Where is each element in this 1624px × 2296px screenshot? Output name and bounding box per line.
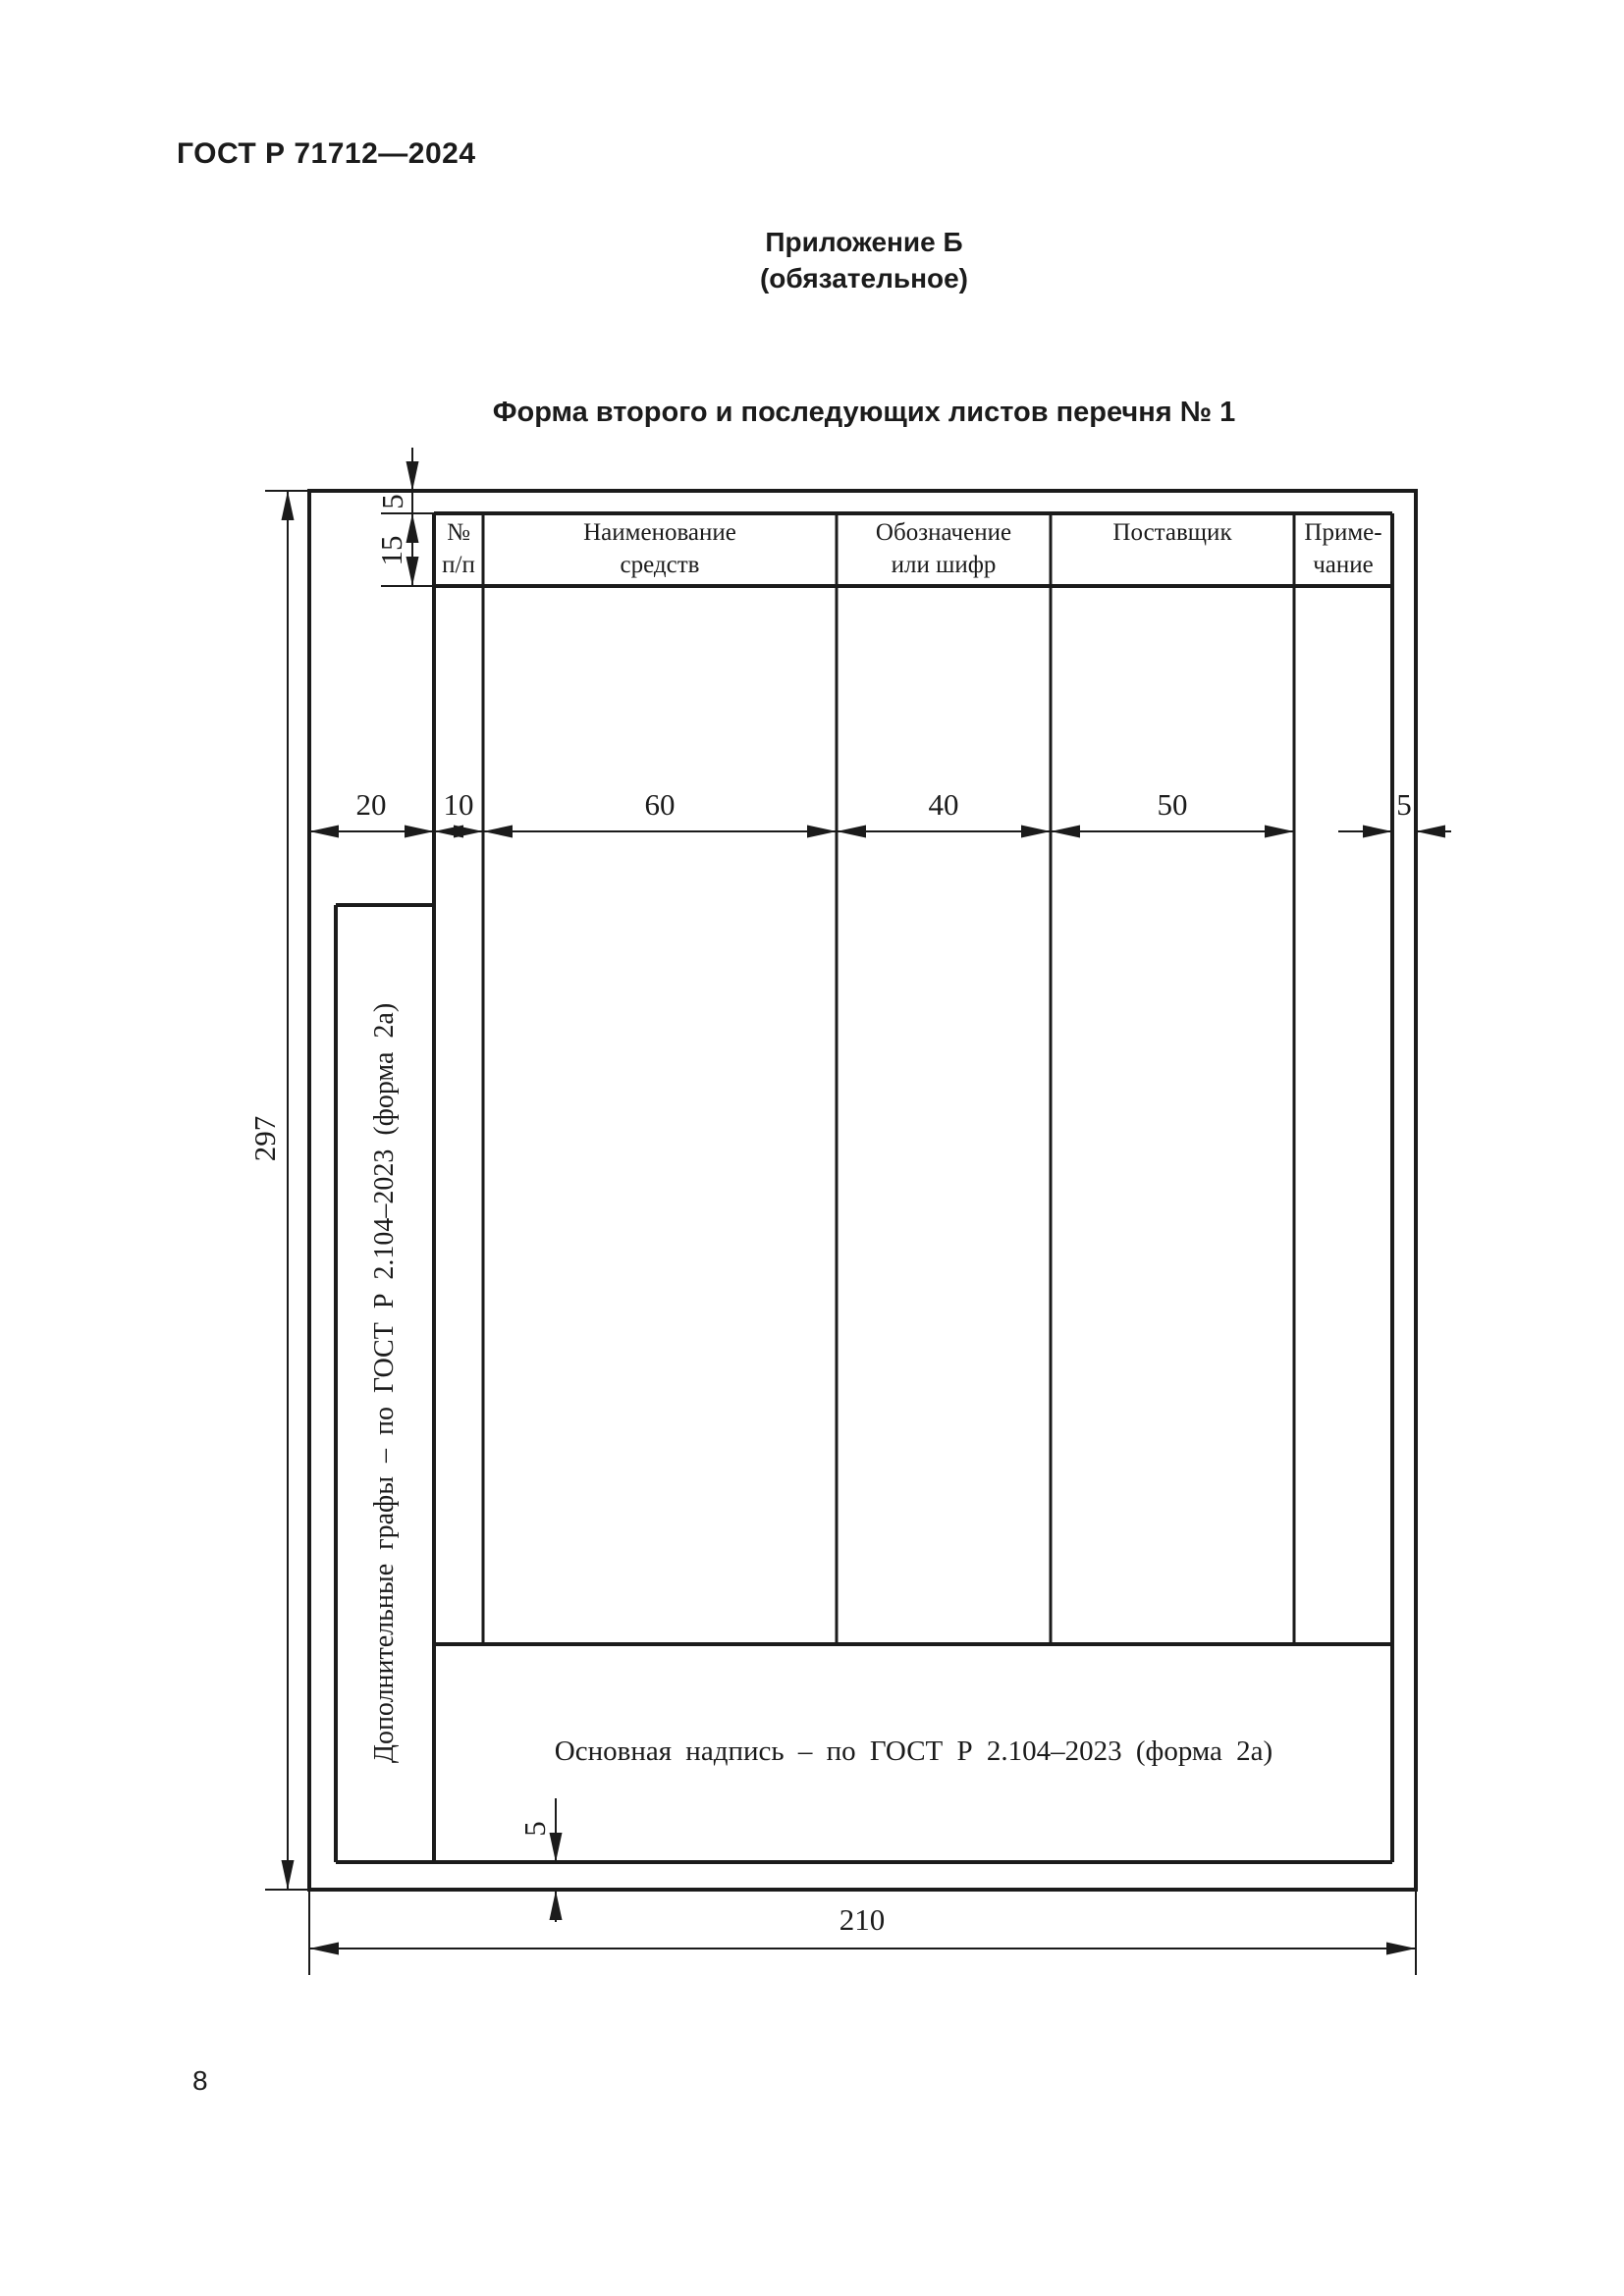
dim-label-col-supplier: 50 xyxy=(1158,787,1188,823)
dim-label-col-designation: 40 xyxy=(929,787,959,823)
table-header-supplier-line1: Поставщик xyxy=(1051,516,1294,549)
table-header-name: Наименование средств xyxy=(483,516,837,581)
table-header-note-line2: чание xyxy=(1294,549,1392,581)
document-page: ГОСТ Р 71712—2024 Приложение Б (обязател… xyxy=(0,0,1624,2296)
table-header-number: № п/п xyxy=(434,516,483,581)
table-header-designation: Обозначение или шифр xyxy=(837,516,1051,581)
table-header-number-line2: п/п xyxy=(434,549,483,581)
table-header-name-line1: Наименование xyxy=(483,516,837,549)
list-table-borders xyxy=(336,513,1392,1862)
dim-column-widths xyxy=(309,826,1451,838)
dim-label-header-height: 15 xyxy=(374,536,409,566)
dim-label-right-margin: 5 xyxy=(1396,787,1412,823)
table-header-note-line1: Приме- xyxy=(1294,516,1392,549)
additional-columns-note: Дополнительные графы – по ГОСТ Р 2.104–2… xyxy=(369,1003,401,1763)
dim-label-col-name: 60 xyxy=(645,787,676,823)
table-header-designation-line1: Обозначение xyxy=(837,516,1051,549)
table-header-note: Приме- чание xyxy=(1294,516,1392,581)
list-table-column-lines xyxy=(483,513,1294,1644)
dim-label-col-number: 10 xyxy=(444,787,474,823)
dim-label-sheet-height: 297 xyxy=(247,1116,283,1162)
dim-label-sheet-width: 210 xyxy=(839,1902,886,1938)
table-header-supplier: Поставщик xyxy=(1051,516,1294,549)
dim-sheet-height xyxy=(265,491,309,1890)
dim-label-left-margin: 20 xyxy=(356,787,387,823)
dim-label-bottom-margin: 5 xyxy=(517,1821,553,1837)
main-inscription-note: Основная надпись – по ГОСТ Р 2.104–2023 … xyxy=(435,1735,1392,1768)
dim-label-top-margin: 5 xyxy=(375,494,410,509)
table-header-name-line2: средств xyxy=(483,549,837,581)
table-header-number-line1: № xyxy=(434,516,483,549)
form-drawing xyxy=(0,0,1624,2296)
page-number: 8 xyxy=(192,2065,208,2097)
sheet-outer-frame xyxy=(309,491,1416,1890)
table-header-designation-line2: или шифр xyxy=(837,549,1051,581)
